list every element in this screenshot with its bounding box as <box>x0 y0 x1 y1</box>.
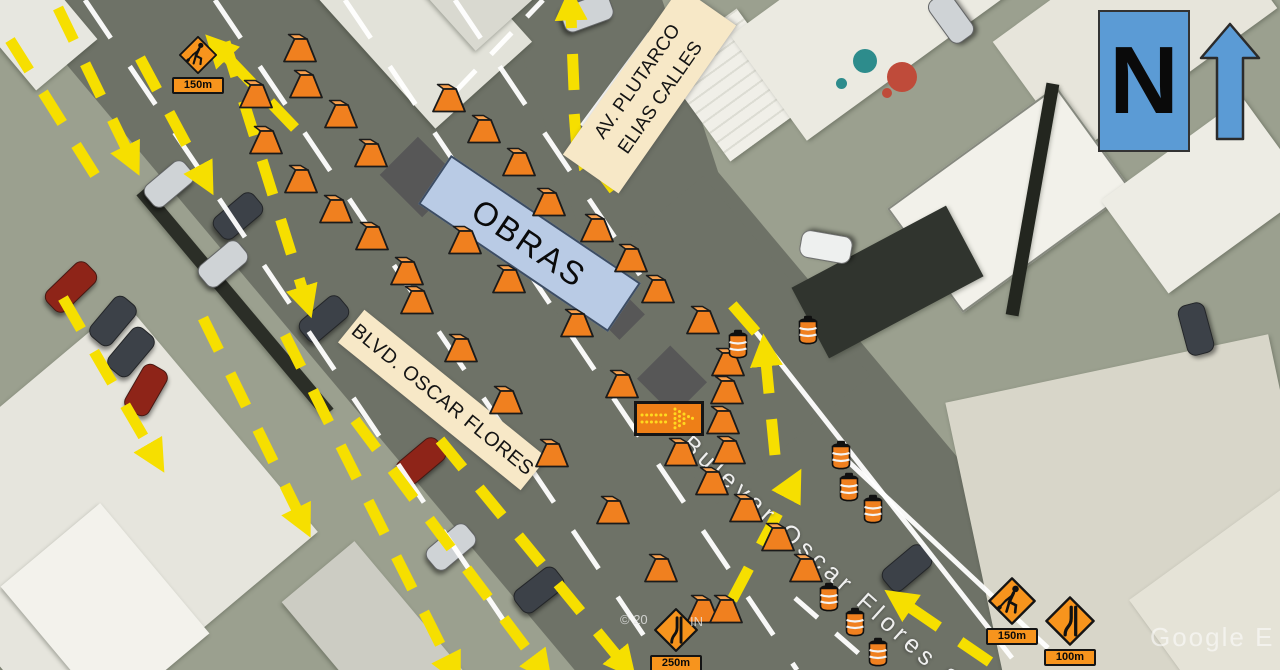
traffic-drum-icon <box>861 494 885 524</box>
traffic-barrier-icon <box>710 434 748 466</box>
traffic-barrier-icon <box>247 124 285 156</box>
traffic-barrier-icon <box>353 220 391 252</box>
traffic-barrier-icon <box>558 307 596 339</box>
traffic-barrier-marker <box>490 263 528 300</box>
traffic-control-plan-map: Bulevar Oscar Flores San OBRAS AV. PLUTA… <box>0 0 1280 670</box>
traffic-barrier-icon <box>639 273 677 305</box>
traffic-barrier-icon <box>317 193 355 225</box>
traffic-barrier-marker <box>247 124 285 161</box>
playground-circle <box>853 49 877 73</box>
traffic-barrier-marker <box>533 437 571 474</box>
traffic-barrier-marker <box>639 273 677 310</box>
traffic-barrier-marker <box>398 284 436 321</box>
playground-circle <box>887 62 917 92</box>
distance-plate: 250m <box>650 655 702 670</box>
lane-merge-icon <box>1044 595 1096 647</box>
traffic-barrier-icon <box>487 384 525 416</box>
north-letter: N <box>1109 26 1178 136</box>
traffic-barrier-marker <box>684 304 722 341</box>
traffic-drum-icon <box>837 472 861 502</box>
traffic-barrier-marker <box>603 368 641 405</box>
traffic-drum-icon <box>843 607 867 637</box>
traffic-drum-icon <box>829 440 853 470</box>
playground-circle <box>882 88 892 98</box>
traffic-barrier-icon <box>322 98 360 130</box>
traffic-barrier-icon <box>388 255 426 287</box>
traffic-barrier-icon <box>708 374 746 406</box>
traffic-barrier-marker <box>558 307 596 344</box>
traffic-barrier-icon <box>704 404 742 436</box>
traffic-barrier-marker <box>287 68 325 105</box>
traffic-barrier-icon <box>642 552 680 584</box>
traffic-barrier-marker <box>578 212 616 249</box>
parked-truck <box>41 257 101 316</box>
traffic-drum-marker <box>726 329 750 364</box>
traffic-barrier-marker <box>500 146 538 183</box>
traffic-barrier-icon <box>500 146 538 178</box>
sign-workers-ahead-bottom: 150m <box>987 576 1037 626</box>
traffic-drum-marker <box>829 440 853 475</box>
traffic-barrier-marker <box>282 163 320 200</box>
traffic-drum-marker <box>796 315 820 350</box>
traffic-barrier-icon <box>530 186 568 218</box>
traffic-barrier-icon <box>430 82 468 114</box>
arrow-board-sign <box>634 401 704 441</box>
traffic-barrier-icon <box>442 332 480 364</box>
traffic-barrier-icon <box>287 68 325 100</box>
traffic-barrier-icon <box>465 113 503 145</box>
traffic-barrier-marker <box>530 186 568 223</box>
traffic-barrier-marker <box>352 137 390 174</box>
traffic-barrier-icon <box>603 368 641 400</box>
sign-lane-merge-bottom: 100m <box>1044 595 1096 647</box>
north-arrow-icon <box>1198 22 1262 142</box>
traffic-barrier-marker <box>693 465 731 502</box>
traffic-drum-marker <box>843 607 867 642</box>
imagery-watermark: © 20 <box>620 612 648 627</box>
distance-plate: 100m <box>1044 649 1096 666</box>
distance-plate: 150m <box>986 628 1038 645</box>
north-indicator-box: N <box>1098 10 1190 152</box>
traffic-barrier-icon <box>490 263 528 295</box>
traffic-barrier-icon <box>707 593 745 625</box>
traffic-barrier-marker <box>281 32 319 69</box>
traffic-barrier-icon <box>282 163 320 195</box>
traffic-barrier-marker <box>642 552 680 589</box>
traffic-barrier-icon <box>594 494 632 526</box>
traffic-barrier-marker <box>594 494 632 531</box>
traffic-drum-icon <box>796 315 820 345</box>
car <box>1176 300 1217 357</box>
traffic-drum-icon <box>817 582 841 612</box>
traffic-barrier-icon <box>684 304 722 336</box>
traffic-barrier-marker <box>317 193 355 230</box>
traffic-barrier-marker <box>487 384 525 421</box>
distance-plate: 150m <box>172 77 224 94</box>
traffic-drum-icon <box>726 329 750 359</box>
traffic-barrier-marker <box>442 332 480 369</box>
traffic-barrier-marker <box>446 224 484 261</box>
traffic-barrier-icon <box>237 78 275 110</box>
traffic-barrier-marker <box>353 220 391 257</box>
traffic-barrier-icon <box>759 521 797 553</box>
traffic-barrier-icon <box>533 437 571 469</box>
car <box>798 229 854 266</box>
traffic-drum-marker <box>817 582 841 617</box>
imagery-watermark: IN <box>690 614 703 629</box>
traffic-barrier-icon <box>693 465 731 497</box>
traffic-barrier-marker <box>707 593 745 630</box>
google-earth-watermark: Google E <box>1150 622 1274 653</box>
building-roof-dark <box>791 206 983 359</box>
traffic-drum-marker <box>861 494 885 529</box>
traffic-barrier-icon <box>352 137 390 169</box>
traffic-barrier-marker <box>322 98 360 135</box>
traffic-drum-marker <box>866 637 890 670</box>
playground-circle <box>836 78 847 89</box>
arrow-board-icon <box>634 401 704 436</box>
traffic-barrier-icon <box>281 32 319 64</box>
traffic-barrier-marker <box>430 82 468 119</box>
traffic-barrier-icon <box>398 284 436 316</box>
traffic-barrier-marker <box>465 113 503 150</box>
traffic-barrier-icon <box>727 492 765 524</box>
sign-workers-ahead-top: 150m <box>178 35 218 75</box>
traffic-barrier-marker <box>237 78 275 115</box>
traffic-drum-icon <box>866 637 890 667</box>
traffic-barrier-icon <box>787 552 825 584</box>
worker-icon <box>987 576 1037 626</box>
worker-icon <box>178 35 218 75</box>
traffic-drum-marker <box>837 472 861 507</box>
traffic-barrier-icon <box>612 242 650 274</box>
traffic-barrier-icon <box>446 224 484 256</box>
traffic-barrier-icon <box>578 212 616 244</box>
